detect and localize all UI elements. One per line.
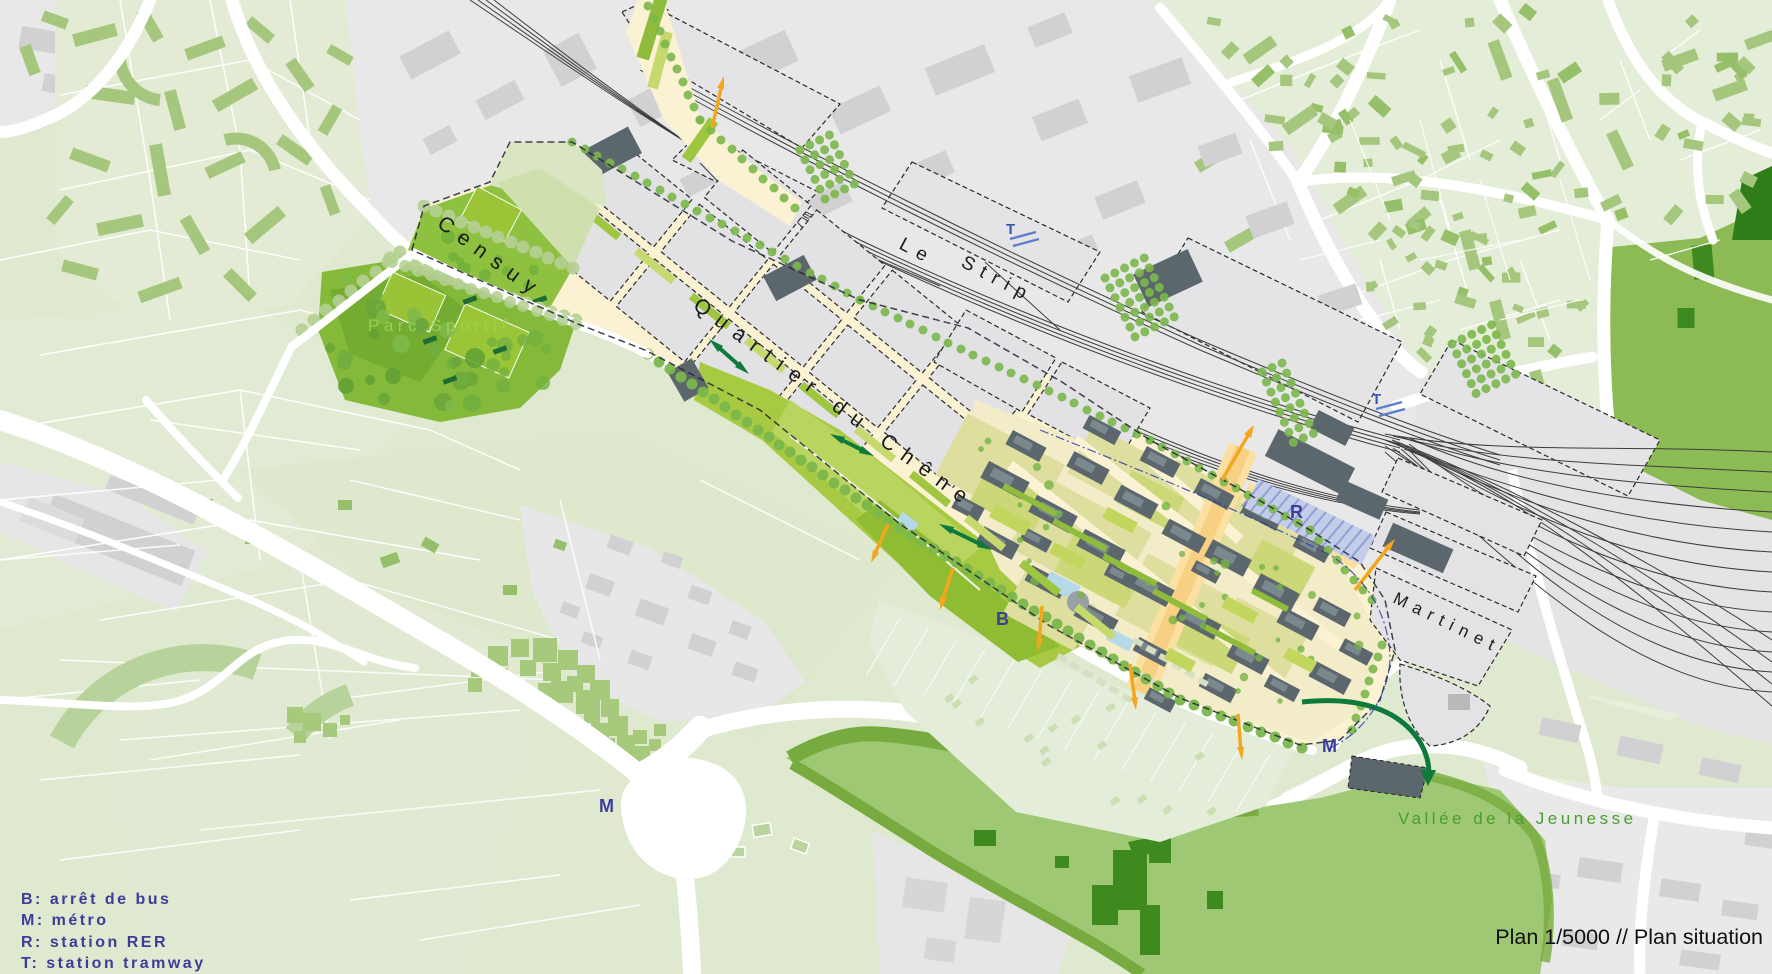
svg-text:Plan 1/5000 // Plan situation: Plan 1/5000 // Plan situation	[1495, 925, 1763, 949]
svg-text:R: R	[1290, 502, 1303, 522]
svg-text:Parc Sportif: Parc Sportif	[368, 316, 511, 335]
svg-text:R: station RER: R: station RER	[21, 934, 168, 951]
svg-text:B: arrêt de bus: B: arrêt de bus	[21, 891, 171, 908]
svg-text:B: B	[996, 609, 1009, 629]
svg-text:M: M	[1322, 736, 1337, 756]
svg-text:M: métro: M: métro	[21, 912, 109, 929]
svg-text:Vallée de la Jeunesse: Vallée de la Jeunesse	[1398, 809, 1637, 828]
svg-text:T: T	[1006, 221, 1015, 238]
svg-text:T: station tramway: T: station tramway	[21, 955, 206, 972]
svg-text:M: M	[599, 796, 614, 816]
svg-text:T: T	[1372, 391, 1381, 408]
